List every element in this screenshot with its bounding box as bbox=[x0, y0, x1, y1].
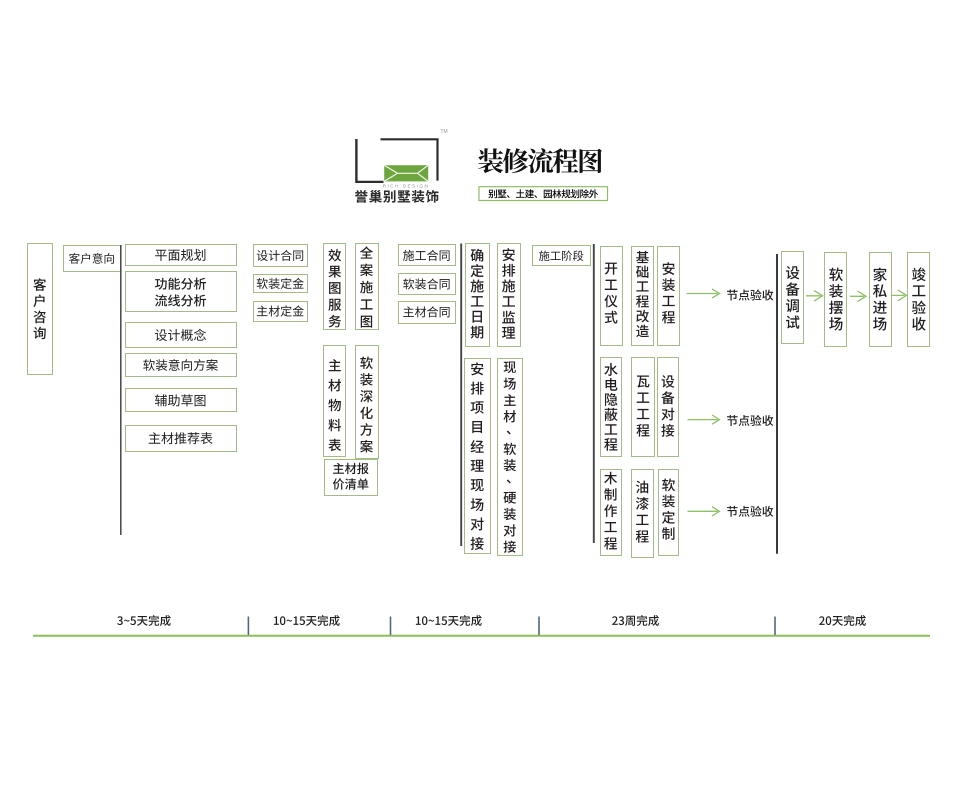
svg-text:RICH DESIGN: RICH DESIGN bbox=[383, 183, 430, 188]
svg-text:TM: TM bbox=[441, 129, 448, 135]
